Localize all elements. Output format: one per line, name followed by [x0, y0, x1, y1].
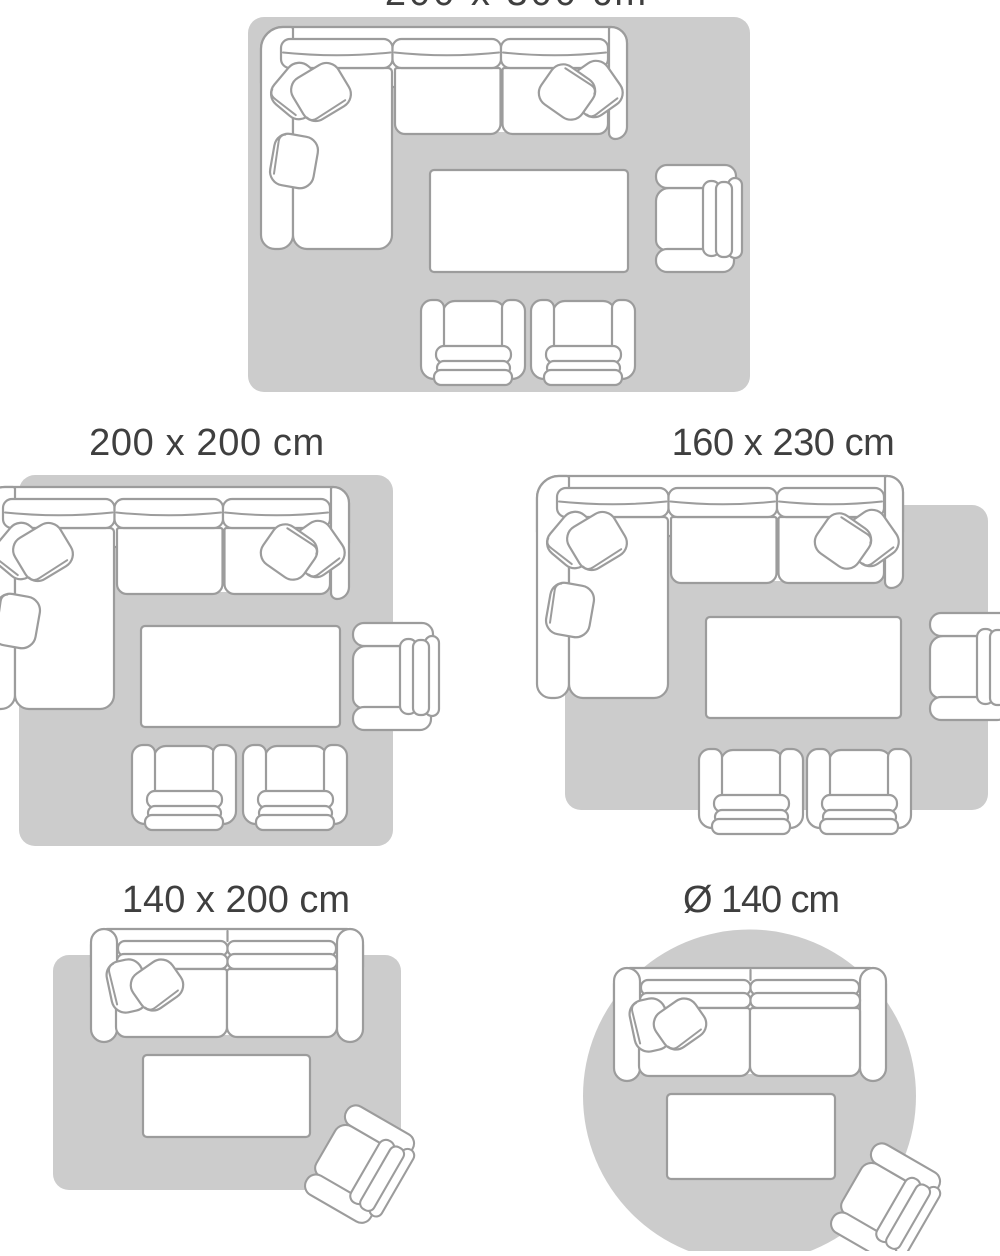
svg-text:200 x 200 cm: 200 x 200 cm [89, 422, 325, 464]
svg-text:200 x 300 cm: 200 x 300 cm [385, 0, 649, 14]
svg-text:140 x 200 cm: 140 x 200 cm [122, 879, 350, 921]
svg-text:Ø 140 cm: Ø 140 cm [683, 879, 839, 921]
svg-text:160 x 230 cm: 160 x 230 cm [672, 422, 895, 464]
